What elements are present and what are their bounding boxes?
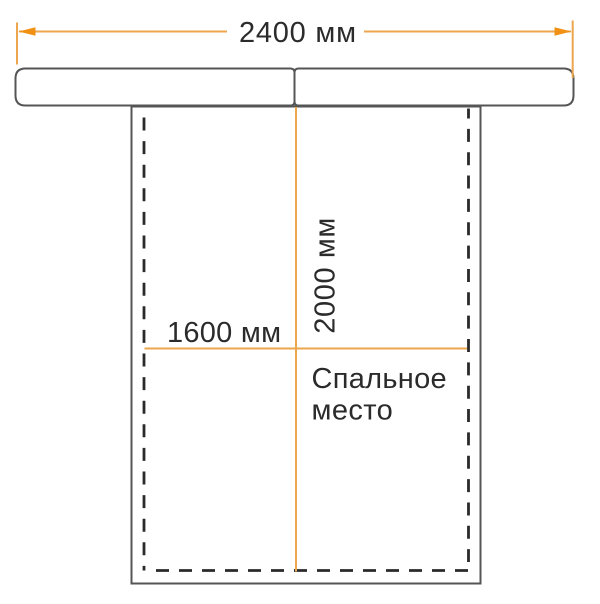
svg-text:1600 мм: 1600 мм — [167, 317, 281, 349]
svg-text:2400 мм: 2400 мм — [239, 17, 356, 49]
svg-text:2000 мм: 2000 мм — [310, 218, 342, 334]
svg-text:место: место — [312, 395, 394, 427]
svg-text:Спальное: Спальное — [312, 363, 447, 395]
